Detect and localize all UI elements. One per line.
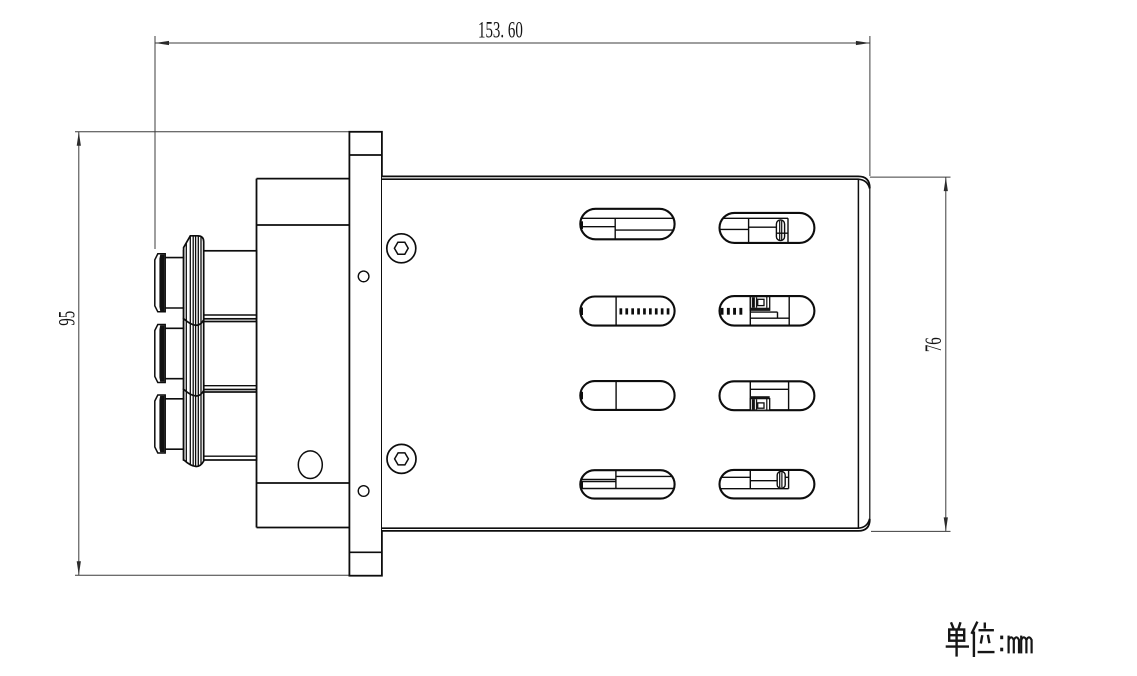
svg-text:76: 76: [922, 337, 947, 352]
svg-text:153. 60: 153. 60: [478, 19, 523, 44]
svg-text:95: 95: [56, 311, 81, 326]
